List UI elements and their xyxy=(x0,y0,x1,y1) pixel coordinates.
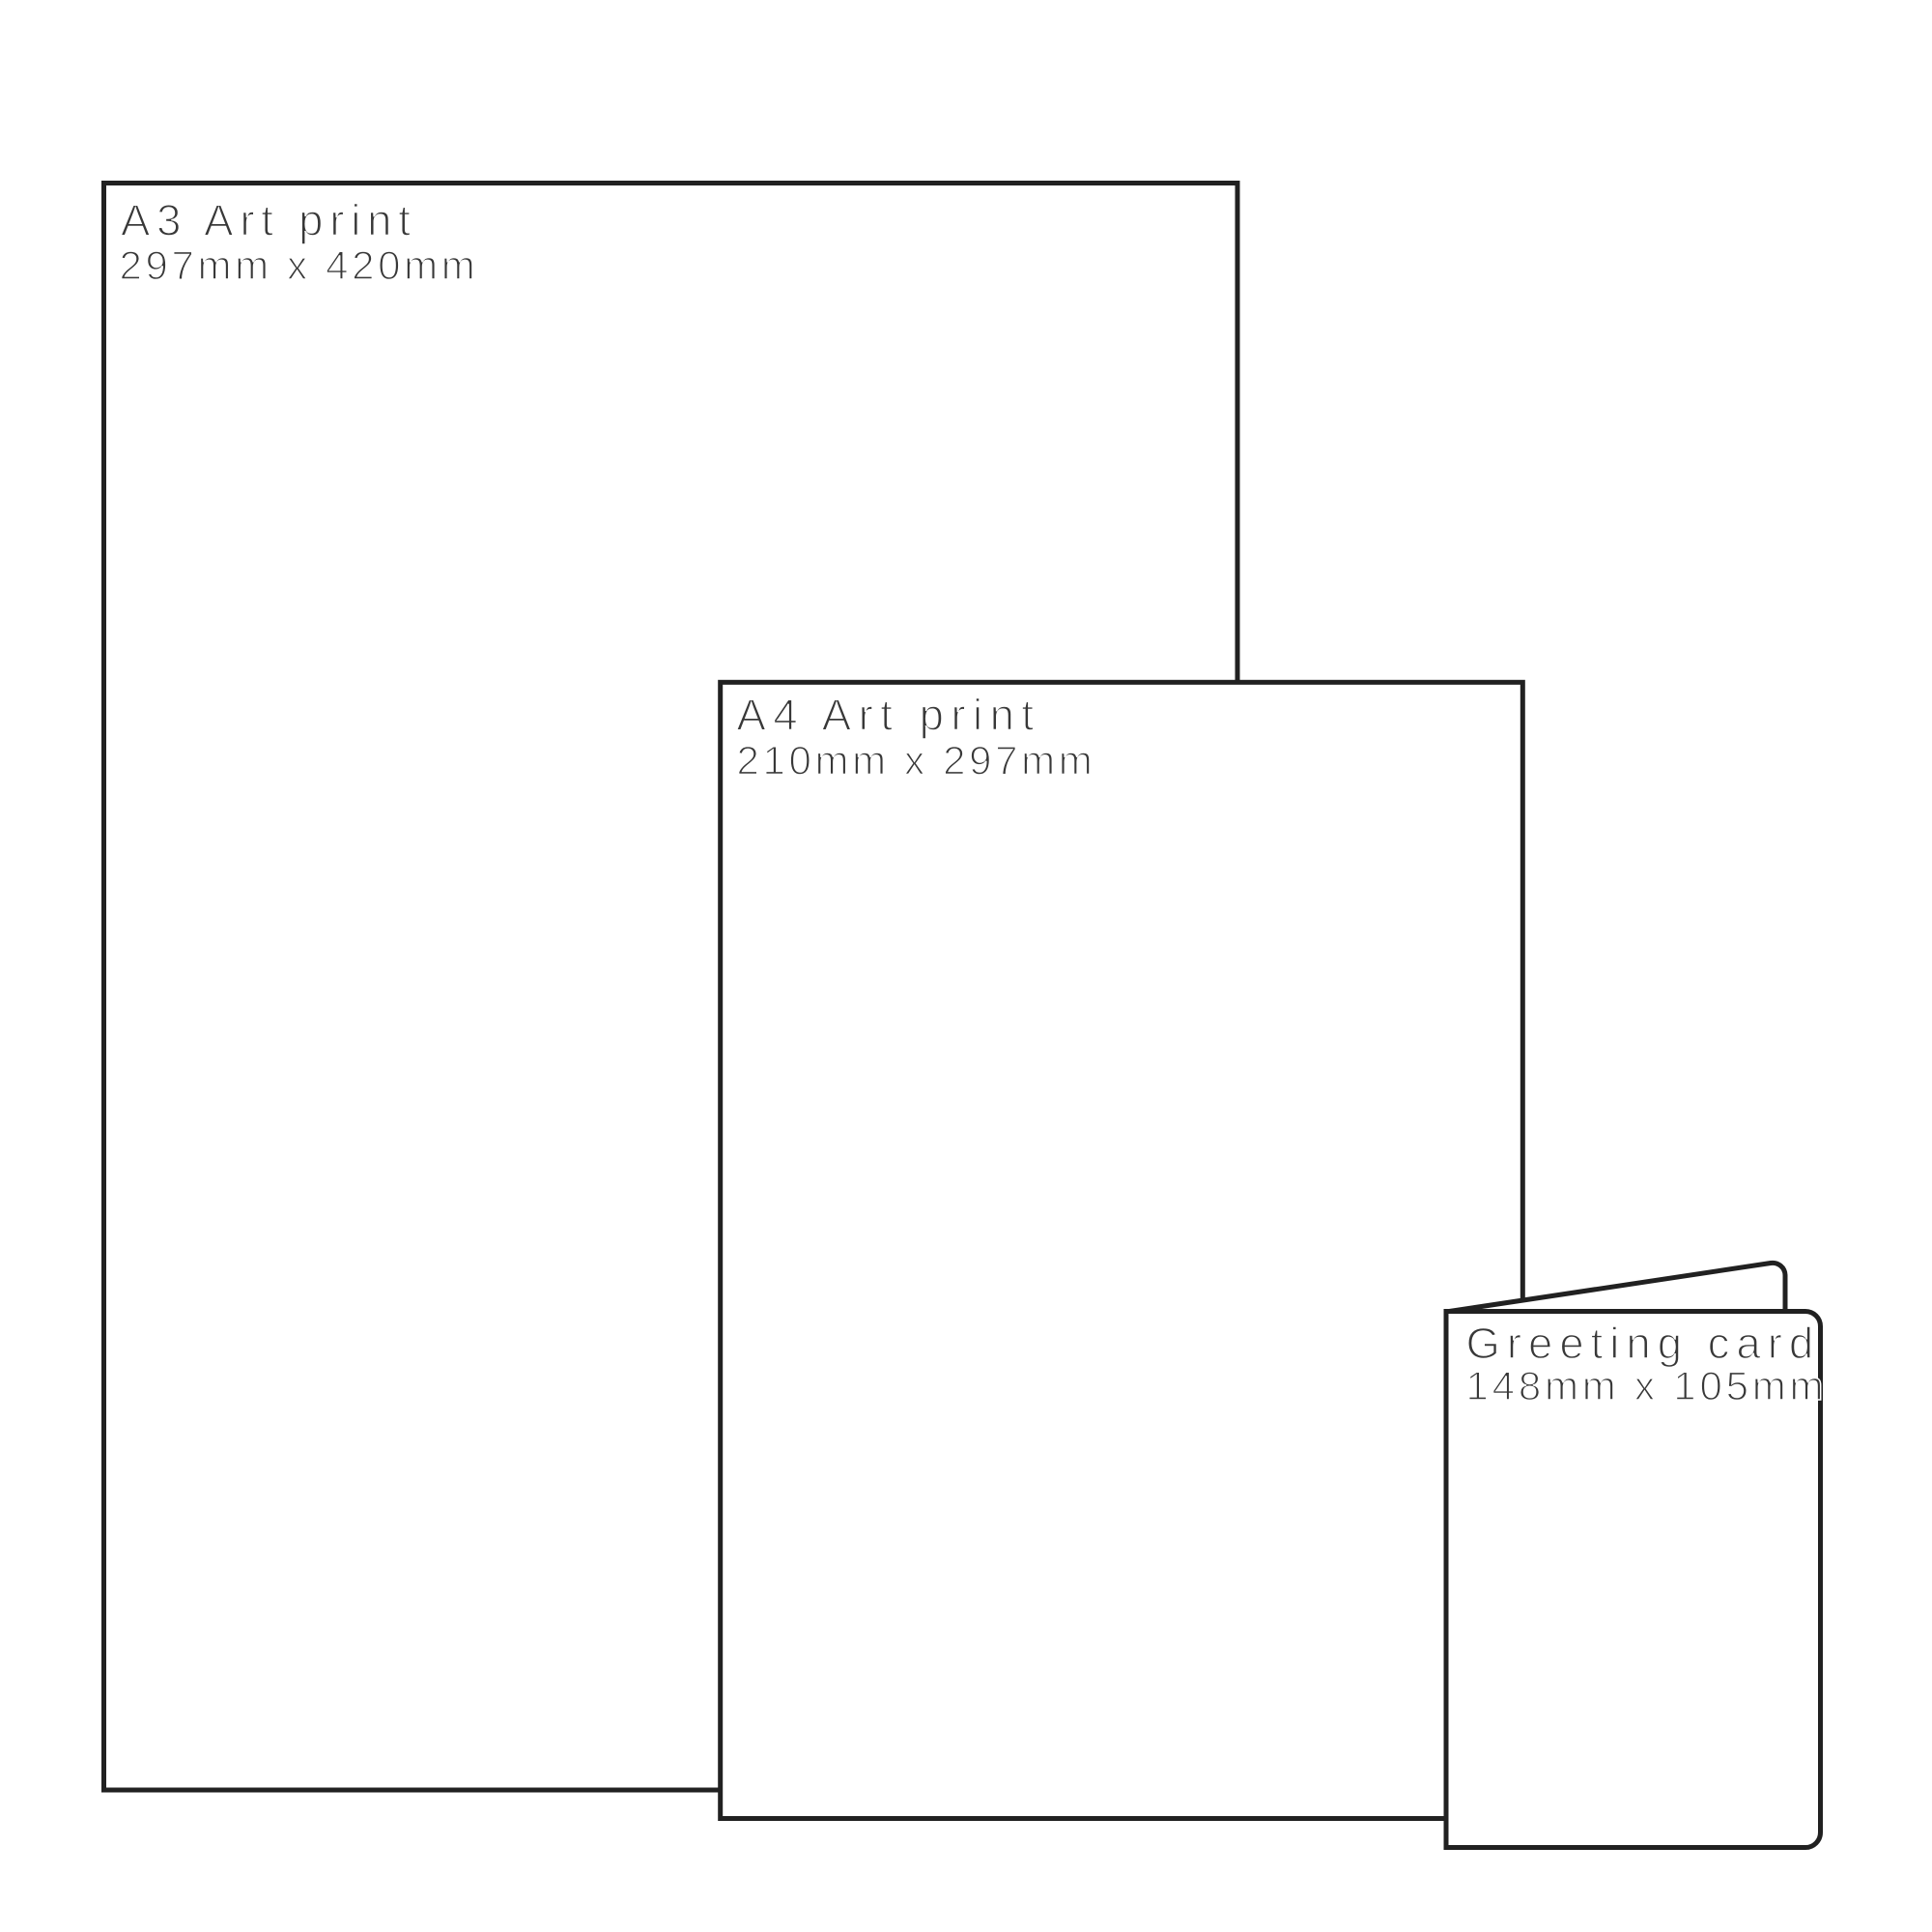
svg-text:148mm x 105mm: 148mm x 105mm xyxy=(1466,1363,1828,1408)
svg-text:A3 Art print: A3 Art print xyxy=(121,196,417,245)
svg-text:297mm x 420mm: 297mm x 420mm xyxy=(120,242,479,288)
svg-text:210mm x 297mm: 210mm x 297mm xyxy=(737,738,1096,783)
svg-text:A4 Art print: A4 Art print xyxy=(737,691,1041,740)
svg-text:Greeting card: Greeting card xyxy=(1466,1319,1821,1368)
